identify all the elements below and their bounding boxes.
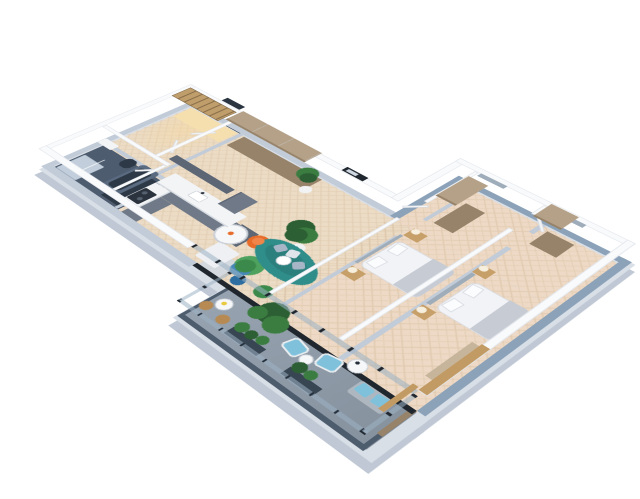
sofa-pillow-3 [292,262,306,270]
apartment-isometric-scene [5,79,634,461]
floorplan-render-canvas [0,0,640,499]
